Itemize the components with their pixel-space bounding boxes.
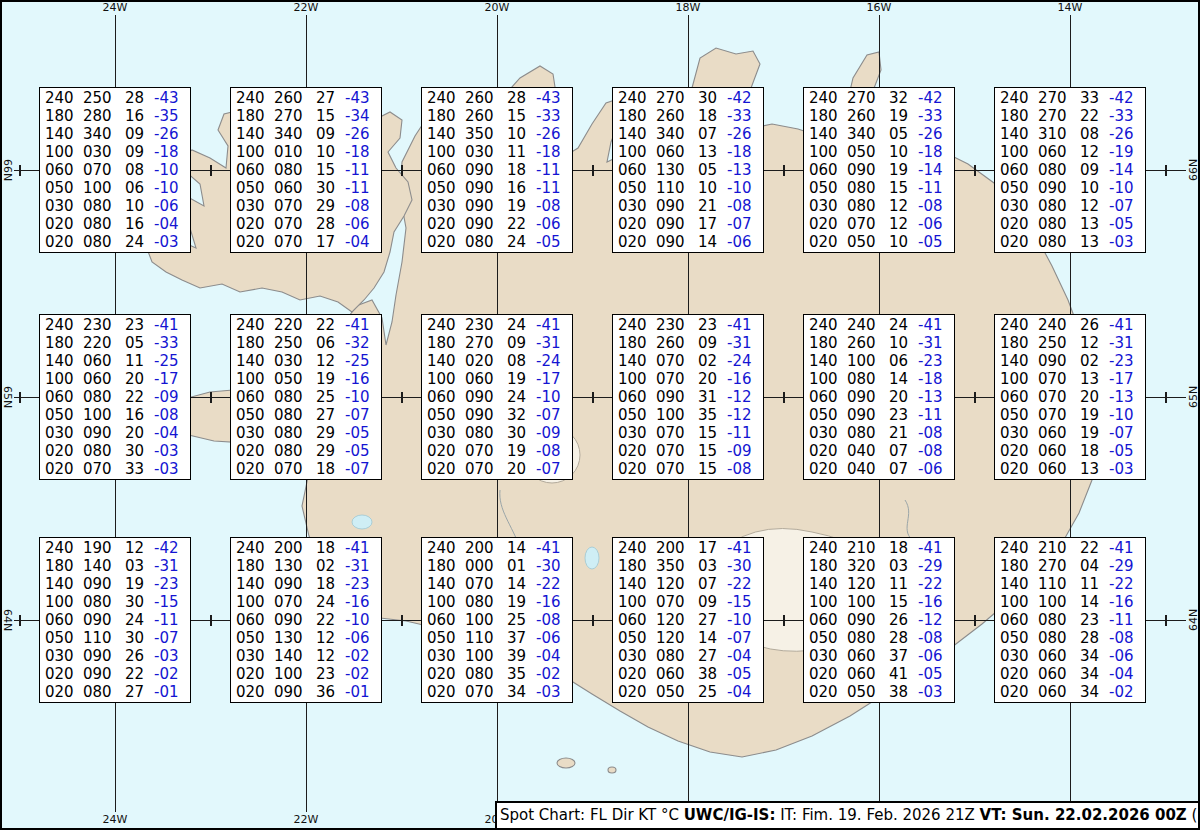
flight-level: 020 — [236, 215, 274, 233]
temperature: -16 — [918, 593, 954, 611]
temperature: -41 — [727, 539, 763, 557]
wind-speed: 02 — [316, 557, 345, 575]
wind-direction: 080 — [83, 593, 125, 611]
flight-level: 060 — [618, 161, 656, 179]
spot-row: 02007017-04 — [231, 233, 381, 251]
wind-speed: 02 — [698, 352, 727, 370]
temperature: -10 — [154, 161, 190, 179]
flight-level: 100 — [236, 143, 274, 161]
spot-chart-stage: 24W24W22W22W20W20W18W18W16W16W14W14W66N6… — [0, 0, 1200, 830]
temperature: -03 — [154, 233, 190, 251]
wind-direction: 060 — [1038, 460, 1080, 478]
wind-speed: 26 — [125, 647, 154, 665]
wind-direction: 070 — [274, 233, 316, 251]
wind-direction: 260 — [656, 107, 698, 125]
graticule-cross — [783, 392, 785, 403]
wind-direction: 030 — [465, 143, 507, 161]
wind-direction: 090 — [83, 424, 125, 442]
wind-direction: 100 — [465, 647, 507, 665]
spot-row: 10006019-17 — [422, 370, 572, 388]
flight-level: 050 — [45, 179, 83, 197]
wind-direction: 090 — [1038, 352, 1080, 370]
flight-level: 020 — [809, 215, 847, 233]
temperature: -03 — [154, 647, 190, 665]
spot-row: 10008014-18 — [804, 370, 954, 388]
temperature: -31 — [536, 334, 572, 352]
wind-direction: 060 — [656, 665, 698, 683]
flight-level: 020 — [1000, 460, 1038, 478]
status-text-segment: UWC/IG-IS: — [684, 806, 776, 824]
spot-row: 06009031-12 — [613, 388, 763, 406]
spot-row: 05010016-08 — [40, 406, 190, 424]
temperature: -16 — [345, 370, 381, 388]
flight-level: 060 — [1000, 388, 1038, 406]
wind-speed: 20 — [889, 388, 918, 406]
spot-row: 24021018-41 — [804, 539, 954, 557]
wind-speed: 11 — [125, 352, 154, 370]
wind-direction: 060 — [465, 370, 507, 388]
spot-row: 24027032-42 — [804, 89, 954, 107]
spot-row: 02005025-04 — [613, 683, 763, 701]
spot-row: 14031008-26 — [995, 125, 1145, 143]
wind-direction: 080 — [83, 683, 125, 701]
wind-direction: 070 — [656, 370, 698, 388]
graticule-cross — [210, 615, 212, 626]
temperature: -11 — [536, 161, 572, 179]
wind-direction: 040 — [847, 442, 889, 460]
flight-level: 020 — [45, 233, 83, 251]
spot-row: 03009020-04 — [40, 424, 190, 442]
flight-level: 140 — [236, 352, 274, 370]
spot-row: 06008023-11 — [995, 611, 1145, 629]
spot-row: 05010006-10 — [40, 179, 190, 197]
flight-level: 140 — [427, 575, 465, 593]
flight-level: 030 — [427, 424, 465, 442]
flight-level: 240 — [236, 316, 274, 334]
temperature: -06 — [918, 215, 954, 233]
wind-direction: 050 — [274, 370, 316, 388]
wind-direction: 070 — [656, 460, 698, 478]
wind-direction: 060 — [847, 665, 889, 683]
wind-speed: 08 — [1080, 125, 1109, 143]
graticule-cross — [401, 615, 403, 626]
flight-level: 240 — [45, 539, 83, 557]
wind-direction: 270 — [1038, 89, 1080, 107]
flight-level: 240 — [618, 316, 656, 334]
flight-level: 100 — [427, 593, 465, 611]
wind-direction: 100 — [83, 179, 125, 197]
wind-speed: 14 — [507, 539, 536, 557]
temperature: -08 — [154, 406, 190, 424]
wind-speed: 23 — [316, 665, 345, 683]
wind-direction: 090 — [83, 647, 125, 665]
wind-direction: 080 — [847, 629, 889, 647]
flight-level: 100 — [618, 370, 656, 388]
wind-speed: 10 — [316, 143, 345, 161]
wind-direction: 070 — [465, 683, 507, 701]
graticule-cross — [19, 165, 21, 176]
spot-row: 18022005-33 — [40, 334, 190, 352]
flight-level: 180 — [427, 557, 465, 575]
spot-row: 10008030-15 — [40, 593, 190, 611]
spot-row: 14010006-23 — [804, 352, 954, 370]
wind-speed: 24 — [507, 233, 536, 251]
flight-level: 020 — [1000, 683, 1038, 701]
spot-row: 18026019-33 — [804, 107, 954, 125]
spot-row: 14034005-26 — [804, 125, 954, 143]
flight-level: 100 — [45, 370, 83, 388]
flight-level: 180 — [1000, 557, 1038, 575]
wind-direction: 060 — [1038, 683, 1080, 701]
wind-direction: 070 — [656, 593, 698, 611]
wind-direction: 090 — [465, 179, 507, 197]
wind-speed: 24 — [507, 388, 536, 406]
spot-row: 10005010-18 — [804, 143, 954, 161]
spot-row: 06013005-13 — [613, 161, 763, 179]
wind-direction: 070 — [656, 424, 698, 442]
flight-level: 140 — [809, 575, 847, 593]
temperature: -05 — [345, 442, 381, 460]
temperature: -12 — [918, 611, 954, 629]
temperature: -31 — [727, 334, 763, 352]
wind-direction: 100 — [274, 665, 316, 683]
wind-speed: 21 — [889, 424, 918, 442]
wind-speed: 23 — [1080, 611, 1109, 629]
temperature: -17 — [1109, 370, 1145, 388]
wind-speed: 18 — [698, 107, 727, 125]
wind-direction: 080 — [847, 370, 889, 388]
wind-direction: 270 — [656, 89, 698, 107]
temperature: -04 — [727, 683, 763, 701]
temperature: -43 — [345, 89, 381, 107]
wind-speed: 16 — [125, 107, 154, 125]
flight-level: 100 — [236, 593, 274, 611]
wind-direction: 090 — [1038, 179, 1080, 197]
temperature: -33 — [154, 334, 190, 352]
wind-speed: 30 — [316, 179, 345, 197]
spot-data-box: 24024024-4118026010-3114010006-231000801… — [803, 314, 955, 480]
wind-speed: 24 — [125, 233, 154, 251]
wind-direction: 130 — [656, 161, 698, 179]
spot-row: 18025006-32 — [231, 334, 381, 352]
spot-row: 02009022-06 — [422, 215, 572, 233]
spot-row: 03008012-07 — [995, 197, 1145, 215]
wind-direction: 130 — [274, 557, 316, 575]
flight-level: 050 — [236, 179, 274, 197]
spot-row: 02006038-05 — [613, 665, 763, 683]
wind-speed: 27 — [125, 683, 154, 701]
flight-level: 050 — [809, 629, 847, 647]
flight-level: 240 — [618, 89, 656, 107]
temperature: -10 — [536, 388, 572, 406]
latitude-label-left: 64N — [1, 609, 14, 631]
spot-data-box: 24023024-4118027009-3114002008-241000601… — [421, 314, 573, 480]
wind-direction: 090 — [656, 215, 698, 233]
flight-level: 060 — [809, 161, 847, 179]
flight-level: 020 — [1000, 442, 1038, 460]
wind-direction: 340 — [274, 125, 316, 143]
wind-speed: 28 — [507, 89, 536, 107]
wind-speed: 03 — [125, 557, 154, 575]
flight-level: 240 — [236, 89, 274, 107]
flight-level: 060 — [618, 388, 656, 406]
spot-row: 24020014-41 — [422, 539, 572, 557]
flight-level: 050 — [618, 406, 656, 424]
wind-direction: 080 — [847, 424, 889, 442]
wind-speed: 19 — [1080, 406, 1109, 424]
wind-direction: 070 — [465, 575, 507, 593]
temperature: -23 — [345, 575, 381, 593]
wind-speed: 15 — [698, 460, 727, 478]
flight-level: 020 — [236, 683, 274, 701]
wind-speed: 34 — [1080, 665, 1109, 683]
temperature: -42 — [1109, 89, 1145, 107]
flight-level: 140 — [45, 575, 83, 593]
spot-data-box: 24027030-4218026018-3314034007-261000601… — [612, 87, 764, 253]
flight-level: 050 — [236, 406, 274, 424]
flight-level: 020 — [45, 442, 83, 460]
spot-row: 10001010-18 — [231, 143, 381, 161]
spot-row: 06009024-11 — [40, 611, 190, 629]
wind-speed: 33 — [125, 460, 154, 478]
temperature: -16 — [536, 593, 572, 611]
temperature: -10 — [727, 179, 763, 197]
wind-direction: 260 — [656, 334, 698, 352]
spot-row: 06010025-08 — [422, 611, 572, 629]
temperature: -18 — [345, 143, 381, 161]
temperature: -14 — [1109, 161, 1145, 179]
graticule-cross — [974, 392, 976, 403]
wind-speed: 16 — [507, 179, 536, 197]
wind-speed: 05 — [889, 125, 918, 143]
wind-speed: 18 — [316, 575, 345, 593]
temperature: -22 — [536, 575, 572, 593]
wind-direction: 070 — [274, 460, 316, 478]
temperature: -07 — [154, 629, 190, 647]
temperature: -05 — [1109, 442, 1145, 460]
temperature: -07 — [1109, 424, 1145, 442]
temperature: -31 — [1109, 334, 1145, 352]
small-island — [608, 767, 616, 773]
graticule-cross — [783, 165, 785, 176]
flight-level: 020 — [45, 665, 83, 683]
flight-level: 030 — [809, 424, 847, 442]
flight-level: 030 — [1000, 647, 1038, 665]
spot-row: 10006013-18 — [613, 143, 763, 161]
flight-level: 020 — [809, 233, 847, 251]
wind-direction: 070 — [274, 197, 316, 215]
wind-speed: 25 — [698, 683, 727, 701]
temperature: -17 — [536, 370, 572, 388]
temperature: -11 — [536, 179, 572, 197]
latitude-label-right: 64N — [1187, 609, 1200, 631]
spot-row: 06007008-10 — [40, 161, 190, 179]
wind-direction: 340 — [847, 125, 889, 143]
flight-level: 240 — [427, 89, 465, 107]
wind-speed: 27 — [698, 611, 727, 629]
flight-level: 030 — [236, 197, 274, 215]
temperature: -41 — [345, 539, 381, 557]
flight-level: 060 — [427, 388, 465, 406]
flight-level: 240 — [236, 539, 274, 557]
flight-level: 020 — [618, 683, 656, 701]
wind-speed: 15 — [316, 107, 345, 125]
spot-row: 14002008-24 — [422, 352, 572, 370]
temperature: -08 — [536, 611, 572, 629]
wind-direction: 100 — [847, 352, 889, 370]
wind-speed: 38 — [698, 665, 727, 683]
flight-level: 180 — [236, 107, 274, 125]
graticule-cross — [783, 615, 785, 626]
spot-row: 06009026-12 — [804, 611, 954, 629]
flight-level: 050 — [427, 406, 465, 424]
flight-level: 100 — [45, 593, 83, 611]
wind-direction: 100 — [847, 593, 889, 611]
spot-row: 02008029-05 — [231, 442, 381, 460]
temperature: -04 — [536, 647, 572, 665]
temperature: -26 — [536, 125, 572, 143]
longitude-label-top: 22W — [294, 1, 319, 14]
temperature: -26 — [1109, 125, 1145, 143]
wind-direction: 060 — [1038, 424, 1080, 442]
wind-speed: 12 — [316, 647, 345, 665]
flight-level: 140 — [45, 352, 83, 370]
spot-row: 02008030-03 — [40, 442, 190, 460]
wind-direction: 070 — [274, 215, 316, 233]
spot-row: 18026010-31 — [804, 334, 954, 352]
wind-speed: 06 — [125, 179, 154, 197]
flight-level: 100 — [618, 143, 656, 161]
temperature: -03 — [536, 683, 572, 701]
wind-direction: 090 — [465, 406, 507, 424]
temperature: -06 — [727, 233, 763, 251]
temperature: -04 — [727, 647, 763, 665]
spot-row: 03014012-02 — [231, 647, 381, 665]
spot-row: 02007028-06 — [231, 215, 381, 233]
wind-speed: 38 — [889, 683, 918, 701]
spot-row: 02008027-01 — [40, 683, 190, 701]
wind-speed: 06 — [316, 334, 345, 352]
spot-row: 03008012-08 — [804, 197, 954, 215]
wind-speed: 10 — [889, 143, 918, 161]
spot-row: 24024024-41 — [804, 316, 954, 334]
flight-level: 240 — [427, 316, 465, 334]
temperature: -08 — [918, 197, 954, 215]
wind-speed: 09 — [125, 125, 154, 143]
longitude-label-top: 14W — [1058, 1, 1083, 14]
wind-direction: 270 — [274, 107, 316, 125]
temperature: -17 — [154, 370, 190, 388]
wind-direction: 270 — [1038, 107, 1080, 125]
wind-speed: 14 — [698, 233, 727, 251]
spot-row: 03008029-05 — [231, 424, 381, 442]
temperature: -11 — [1109, 611, 1145, 629]
spot-data-box: 24020014-4118000001-3014007014-221000801… — [421, 537, 573, 703]
temperature: -06 — [536, 215, 572, 233]
spot-row: 18027022-33 — [995, 107, 1145, 125]
graticule-cross — [592, 392, 594, 403]
wind-speed: 20 — [1080, 388, 1109, 406]
spot-row: 03008010-06 — [40, 197, 190, 215]
temperature: -24 — [727, 352, 763, 370]
temperature: -01 — [154, 683, 190, 701]
graticule-cross — [974, 615, 976, 626]
wind-direction: 090 — [847, 388, 889, 406]
spot-row: 18026015-33 — [422, 107, 572, 125]
temperature: -35 — [154, 107, 190, 125]
temperature: -41 — [1109, 316, 1145, 334]
wind-direction: 090 — [656, 197, 698, 215]
temperature: -07 — [345, 460, 381, 478]
graticule-cross — [1165, 165, 1167, 176]
temperature: -33 — [727, 107, 763, 125]
graticule-cross — [1165, 615, 1167, 626]
wind-speed: 26 — [1080, 316, 1109, 334]
spot-data-box: 24024026-4118025012-3114009002-231000701… — [994, 314, 1146, 480]
spot-row: 02009022-02 — [40, 665, 190, 683]
flight-level: 240 — [809, 316, 847, 334]
temperature: -06 — [345, 215, 381, 233]
wind-speed: 17 — [698, 539, 727, 557]
wind-speed: 07 — [889, 460, 918, 478]
graticule-cross — [210, 392, 212, 403]
latitude-label-right: 65N — [1187, 386, 1200, 408]
wind-direction: 090 — [847, 161, 889, 179]
graticule-cross — [19, 392, 21, 403]
spot-row: 14009019-23 — [40, 575, 190, 593]
spot-data-box: 24026028-4318026015-3314035010-261000301… — [421, 87, 573, 253]
graticule-cross — [592, 165, 594, 176]
spot-row: 24019012-42 — [40, 539, 190, 557]
wind-direction: 080 — [274, 406, 316, 424]
temperature: -41 — [154, 316, 190, 334]
temperature: -07 — [536, 460, 572, 478]
wind-direction: 060 — [1038, 143, 1080, 161]
spot-row: 05012014-07 — [613, 629, 763, 647]
wind-speed: 19 — [1080, 424, 1109, 442]
wind-direction: 070 — [656, 442, 698, 460]
flight-level: 030 — [236, 424, 274, 442]
flight-level: 050 — [618, 629, 656, 647]
temperature: -41 — [345, 316, 381, 334]
temperature: -05 — [536, 233, 572, 251]
flight-level: 050 — [427, 629, 465, 647]
flight-level: 060 — [809, 611, 847, 629]
wind-direction: 090 — [274, 683, 316, 701]
temperature: -11 — [345, 161, 381, 179]
temperature: -41 — [536, 316, 572, 334]
spot-data-box: 24027033-4218027022-3314031008-261000601… — [994, 87, 1146, 253]
temperature: -41 — [1109, 539, 1145, 557]
flight-level: 180 — [618, 334, 656, 352]
temperature: -03 — [1109, 460, 1145, 478]
spot-data-box: 24021022-4118027004-2914011011-221001001… — [994, 537, 1146, 703]
temperature: -15 — [154, 593, 190, 611]
wind-speed: 24 — [507, 316, 536, 334]
spot-row: 24027033-42 — [995, 89, 1145, 107]
flight-level: 100 — [809, 143, 847, 161]
temperature: -07 — [727, 629, 763, 647]
wind-direction: 080 — [274, 424, 316, 442]
flight-level: 240 — [45, 316, 83, 334]
flight-level: 100 — [1000, 143, 1038, 161]
spot-row: 14034007-26 — [613, 125, 763, 143]
wind-direction: 090 — [465, 388, 507, 406]
spot-row: 03006034-06 — [995, 647, 1145, 665]
flight-level: 050 — [45, 629, 83, 647]
latitude-label-left: 66N — [1, 159, 14, 181]
temperature: -06 — [345, 629, 381, 647]
